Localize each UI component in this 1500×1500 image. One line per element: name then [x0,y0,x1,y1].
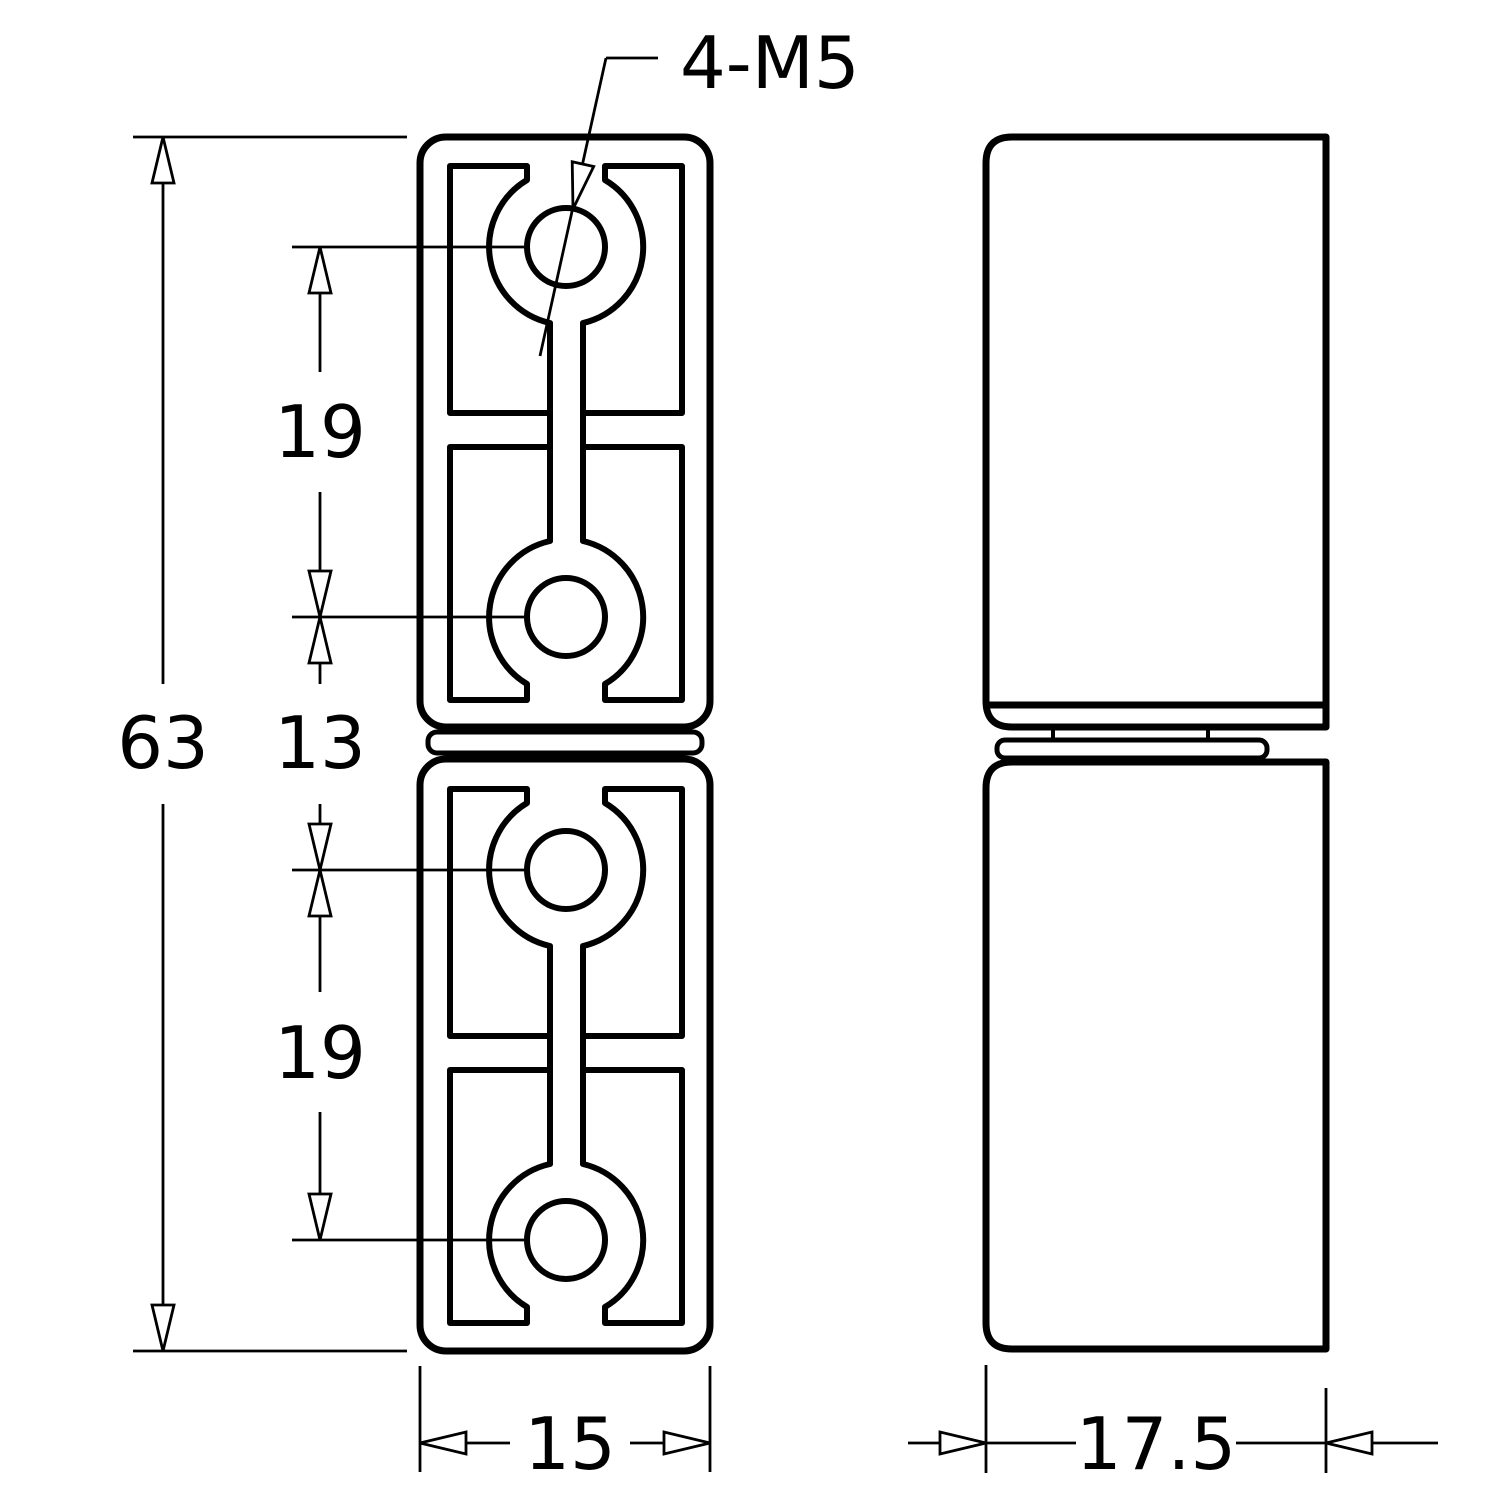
mounting-hole-3 [527,831,605,909]
hinge-pin-bar [428,732,702,753]
pocket-outline [450,166,550,413]
drawing-sheet: 63 19 13 19 15 [0,0,1500,1500]
pocket-outline [450,1070,550,1323]
mounting-hole-4 [527,1201,605,1279]
bottom-leaf-outline [420,759,710,1351]
pocket-outline [583,1070,682,1323]
dimension-arrow-icon [420,1432,466,1454]
pocket-outline [583,789,682,1036]
side-top-leaf-outline [986,137,1326,727]
dimension-text-front-width: 15 [524,1402,616,1486]
dimension-text-lower-pitch: 19 [274,1011,366,1095]
hole-callout-text: 4-M5 [680,21,860,105]
dimension-arrow-icon [152,137,174,183]
dimension-arrow-icon [309,617,331,663]
dimension-arrow-icon [152,1305,174,1351]
side-view [986,137,1326,1349]
pocket-outline [450,447,550,700]
dimension-arrow-icon [309,870,331,916]
dimension-text-knuckle-span: 13 [274,701,366,785]
hinge-pin-bar [997,740,1267,758]
pocket-outline [583,166,682,413]
dimension-text-side-width: 17.5 [1076,1402,1236,1486]
leader-arrow-icon [562,162,593,212]
dimension-text-overall-height: 63 [117,701,209,785]
dimension-arrow-icon [940,1432,986,1454]
dimension-arrow-icon [309,247,331,293]
mounting-hole-1 [527,208,605,286]
front-view [420,137,710,1351]
technical-drawing-canvas: 63 19 13 19 15 [0,0,1500,1500]
dimension-arrow-icon [309,571,331,617]
dimension-arrow-icon [309,824,331,870]
dimension-arrow-icon [1326,1432,1372,1454]
dimension-text-upper-pitch: 19 [274,390,366,474]
dimension-arrow-icon [309,1194,331,1240]
side-bottom-leaf-outline [986,762,1326,1349]
dimension-arrow-icon [664,1432,710,1454]
mounting-hole-2 [527,578,605,656]
pocket-outline [450,789,550,1036]
pocket-outline [583,447,682,700]
top-leaf-outline [420,137,710,727]
